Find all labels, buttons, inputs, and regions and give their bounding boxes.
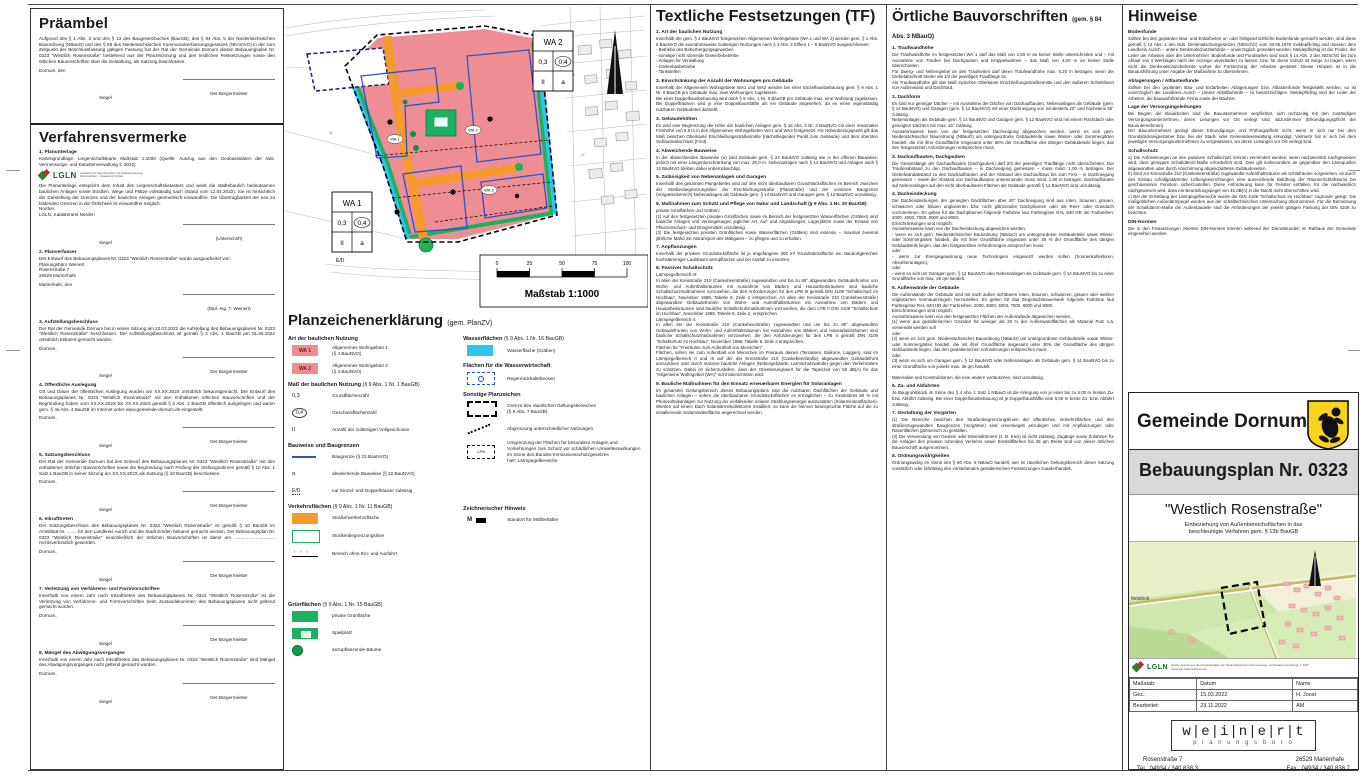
legend-item-label: Grundflächenzahl [332, 393, 369, 399]
obv-section-body: Die Dacheindeckungen der geneigten Dachf… [892, 198, 1114, 281]
legend-symbol: M [467, 517, 486, 523]
seal-label: Siegel [99, 443, 112, 448]
hinweise-section-body: Sollten bei den geplanten Bau- und Erdar… [1128, 85, 1356, 102]
firm-logo: w|e|i|n|e|r|t p l a n u n g s b ü r o [1129, 720, 1358, 751]
svg-text:51: 51 [329, 131, 333, 135]
lgln-logo-mark [1133, 662, 1144, 673]
firm-name: w|e|i|n|e|r|t [1182, 724, 1304, 740]
legend-item-label: nur Einzel- und Doppelhäuser zulässig [332, 488, 412, 494]
legend-item-label: private Grünfläche [332, 613, 370, 619]
obv-section-heading: 1. Traufwandhöhe [892, 46, 1114, 51]
tf-section-heading: 4. Abweichende Bauweise [656, 149, 878, 154]
legend-item: Regenrückhaltebecken [463, 372, 644, 385]
obv-section: 6. Zu- und Abfahrten Je Baugrundstück im… [892, 384, 1114, 407]
verfahren-item: 2. Planverfasser Der Entwurf des Bebauun… [39, 250, 275, 315]
seal-label: Siegel [99, 577, 112, 582]
verfahren-item-place: Dornum, [39, 479, 275, 485]
lgln-logo-mark [39, 170, 50, 181]
svg-text:0,3: 0,3 [538, 59, 547, 66]
legend-item: II Anzahl der zulässigen Vollgeschosse [288, 425, 457, 436]
table-cell: 15.03.2022 [1197, 689, 1293, 700]
firm-subtitle: p l a n u n g s b ü r o [1182, 740, 1304, 746]
signature-row: Siegel Der Bürgermeister [39, 625, 275, 646]
legend-item: 0,3 Grundflächenzahl [288, 391, 457, 402]
svg-text:E/D: E/D [336, 258, 345, 264]
tf-section-heading: 7. Anpflanzungen [656, 245, 878, 250]
svg-text:0,3: 0,3 [337, 220, 346, 227]
tf-section-body: Innerhalb des gesamten Plangebietes sind… [656, 181, 878, 198]
tf-section-heading: 8. Passiver Schallschutz [656, 266, 878, 271]
verfahren-item-body2: Die Planunterlage entspricht dem Inhalt … [39, 183, 275, 217]
dornum-coat-of-arms [1306, 399, 1350, 451]
signature-label: Der Bürgermeister [210, 695, 248, 700]
obv-section-heading: 8. Ordnungswidrigkeiten [892, 454, 1114, 459]
legend-item: Grenze des räumlichen Geltungsbereiches … [463, 401, 644, 417]
legend-item: 0,4 Geschossflächenzahl [288, 408, 457, 419]
legend-item: a abweichende Bauweise (§ 22 BauNVO) [288, 469, 457, 480]
obv-section-heading: 4. Dacheindeckung [892, 192, 1114, 197]
divider-1 [650, 4, 651, 771]
legend-title: Planzeichenerklärung (gem. PlanZV) [288, 312, 644, 329]
legend-item: Wasserfläche (Gräben) [463, 345, 644, 356]
tf-section: 2. Einschränkung der Anzahl der Wohnunge… [656, 79, 878, 113]
legend-section: Planzeichenerklärung (gem. PlanZV) Art d… [288, 312, 644, 662]
legend-group-heading: Grünflächen (§ 9 Abs. 1 Nr. 15 BauGB) [288, 602, 457, 608]
legend-item: Baugrenze (§ 23 BauNVO) [288, 452, 457, 463]
lgln-attribution-text: Quelle: Auszug aus den Geobasisdaten der… [1171, 664, 1331, 670]
hinweise-section: Ablagerungen / Altlastenfunde Sollten be… [1128, 79, 1356, 102]
verfahren-item-title: 3. Aufstellungsbeschluss [39, 320, 275, 325]
signature-label: (Unterschrift) [216, 236, 243, 241]
verfahren-item-place: Dornum, [39, 549, 275, 555]
verfahren-item-title: 5. Satzungsbeschluss [39, 453, 275, 458]
svg-text:a: a [561, 79, 565, 86]
site-plan-svg: WA 1 WA 2 WA 2 51 35 17 WA 2 0,3 [285, 6, 648, 308]
legend-symbol [467, 372, 495, 385]
legend-symbol [292, 645, 303, 656]
signature-line [183, 79, 275, 81]
legend-group: Maß der baulichen Nutzung (§ 9 Abs. 1 Nr… [288, 382, 457, 436]
seal-label: Siegel [99, 95, 112, 100]
legend-group-heading: Maß der baulichen Nutzung (§ 9 Abs. 1 Nr… [288, 382, 457, 388]
verfahren-item-place: Dornum, [39, 613, 275, 619]
legend-symbol [468, 423, 491, 434]
legend-item-label: abweichende Bauweise (§ 22 BauNVO) [332, 471, 415, 477]
legend-group-heading: Zeichnerischer Hinweis [463, 506, 644, 512]
obv-section: 8. Ordnungswidrigkeiten Ordnungswidrig i… [892, 454, 1114, 471]
legend-symbol [292, 456, 316, 458]
obv-title: Örtliche Bauvorschriften (gem. § 84 Abs.… [892, 8, 1114, 42]
municipality-header: Gemeinde Dornum [1129, 393, 1358, 450]
table-cell: Gez.: [1130, 689, 1197, 700]
signature-row: Siegel Der Bürgermeister [39, 683, 275, 704]
retention-pond [307, 48, 389, 91]
verfahren-item-body1: Der Rat der Gemeinde Dornum hat den Entw… [39, 459, 275, 476]
svg-text:75: 75 [592, 261, 598, 267]
road-end-green [456, 82, 464, 90]
verfahren-item-body1: Ort und Dauer der öffentlichen Auslegung… [39, 389, 275, 412]
legend-symbol [292, 551, 318, 557]
svg-text:50: 50 [559, 261, 565, 267]
obv-section: 7. Gestaltung der Vorgärten (1) Die Bere… [892, 411, 1114, 450]
signature-row: Siegel Der Bürgermeister [39, 357, 275, 378]
legend-item: Straßenverkehrsfläche [288, 513, 457, 524]
seal-label: Siegel [99, 373, 112, 378]
legend-item: LPB Umgrenzung der Flächen für besondere… [463, 440, 644, 464]
signature-label: Der Bürgermeister [210, 573, 248, 578]
hinweise-section-heading: Ablagerungen / Altlastenfunde [1128, 79, 1356, 84]
table-cell: Name [1293, 678, 1358, 689]
procedure-column: Präambel Aufgrund des § 1 Abs. 3 und des… [30, 8, 284, 770]
legend-group-heading: Bauweise und Baugrenzen [288, 443, 457, 449]
hinweise-section-heading: Bodenfunde [1128, 30, 1356, 35]
tf-title: Textliche Festsetzungen (TF) [656, 8, 878, 26]
hinweise-section-heading: Schallschutz [1128, 149, 1356, 154]
legend-group: Sonstige Planzeichen Grenze des räumlich… [463, 392, 644, 464]
legend-item-label: Allgemeines Wohngebiet 1 (§ 4 BauNVO) [332, 345, 388, 357]
legend-symbol [467, 401, 497, 417]
hinweise-column: Hinweise Bodenfunde Sollten bei den gepl… [1128, 8, 1356, 241]
location-map-label: ttelstrick [1131, 596, 1150, 602]
legend-item-label: Umgrenzung der Flächen für besondere Anl… [507, 440, 644, 464]
tf-section-heading: 2. Einschränkung der Anzahl der Wohnunge… [656, 79, 878, 84]
tf-section-heading: 3. Gebäudehöhen [656, 117, 878, 122]
tf-section-heading: 1. Art der baulichen Nutzung [656, 30, 878, 35]
verfahren-item-title: 1. Planunterlage [39, 150, 275, 155]
verfahren-item-body1: Der Entwurf des Bebauungsplanes Nr. 0323… [39, 256, 275, 279]
tf-section-body: private Grünflächen und Gräben: (1) Auf … [656, 208, 878, 241]
legend-group: Grünflächen (§ 9 Abs. 1 Nr. 15 BauGB) pr… [288, 602, 457, 656]
firm-fax: Fax.: 04934 / 340 838 7 [1287, 766, 1350, 772]
signature-line [183, 625, 275, 627]
legend-group: Zeichnerischer Hinweis M Standort für Mü… [463, 506, 644, 526]
legend-item-label: Bereich ohne Ein- und Ausfahrt [332, 551, 397, 557]
legend-item-label: Wasserfläche (Gräben) [507, 348, 555, 354]
verfahren-list: 1. Planunterlage Kartengrundlage: Liegen… [39, 150, 275, 704]
legend-symbol: II [292, 427, 295, 433]
revision-table: Maßstab: Datum Name Gez.: 15.03.2022 H. … [1129, 678, 1358, 712]
verfahren-item-title: 7. Verletzung von Verfahrens- und Formvo… [39, 587, 275, 592]
lgln-logo: LGLN Landesamt für Geoinformation und La… [39, 170, 275, 181]
tf-section-heading: 9. Bauliche Maßnahmen für den Einsatz er… [656, 382, 878, 387]
obv-section: 1. Traufwandhöhe Die Traufwandhöhe im fe… [892, 46, 1114, 91]
table-cell: Datum [1197, 678, 1293, 689]
legend-item-label: Spielplatz [332, 630, 352, 636]
tf-section-body: Im gesamten Geltungsbereich dieses Bebau… [656, 388, 878, 416]
verfahren-item-title: 8. Mängel des Abwägungsvorganges [39, 651, 275, 656]
tf-section-body: Innerhalb der gem. § 4 BauNVO festgesetz… [656, 36, 878, 75]
legend-item-label: Straßenbegrenzungslinie [332, 533, 384, 539]
signature-line [183, 683, 275, 685]
hinweise-section: Schallschutz a) Die Anforderungen an den… [1128, 149, 1356, 216]
verfahren-item-place: Dornum, [39, 671, 275, 677]
lgln-logo-word: LGLN [53, 171, 77, 180]
legend-item: Straßenbegrenzungslinie [288, 530, 457, 543]
verfahren-item-body1: Innerhalb von einem Jahr nach Inkrafttre… [39, 657, 275, 668]
hinweise-section-heading: DIN-Normen [1128, 220, 1356, 225]
tf-section: 9. Bauliche Maßnahmen für den Einsatz er… [656, 382, 878, 416]
legend-symbol [292, 530, 320, 543]
svg-text:25: 25 [527, 261, 533, 267]
legend-item-label: Geschossflächenzahl [332, 410, 377, 416]
legend-symbol: LPB [467, 445, 495, 459]
legend-item-label: Regenrückhaltebecken [507, 376, 555, 382]
legend-symbol [292, 513, 318, 524]
svg-text:WA 2: WA 2 [544, 38, 563, 47]
verfahren-item-body1: Kartengrundlage: Liegenschaftskarte Maßs… [39, 156, 275, 167]
signature-label: Der Bürgermeister [210, 369, 248, 374]
obv-section-body: Die Außenwände der Gebäude sind mit nach… [892, 292, 1114, 381]
signature-row: Siegel (Unterschrift) [39, 224, 275, 245]
verfahren-item-title: 2. Planverfasser [39, 250, 275, 255]
nutzungsschablone-wa2: WA 2 0,3 0,4 II a [533, 31, 573, 91]
lgln-logo-word: LGLN [1147, 664, 1168, 671]
seal-label: Siegel [99, 507, 112, 512]
table-cell: 23.11.2022 [1197, 700, 1293, 711]
obv-section: 2. Dachform Es sind nur geneigte Dächer … [892, 95, 1114, 151]
legend-group-heading: Flächen für die Wasserwirtschaft [463, 363, 644, 369]
obv-section-body: Je Baugrundstück im Sinne des § 4 Abs. 1… [892, 390, 1114, 407]
legend-symbol: WA 1 [292, 345, 318, 356]
hinweise-section-heading: Lage der Versorgungsleitungen [1128, 105, 1356, 110]
signature-label: Der Bürgermeister [210, 637, 248, 642]
scale-label: Maßstab 1:1000 [525, 289, 600, 300]
legend-group: Verkehrsflächen (§ 9 Abs. 1 Nr. 11 BauGB… [288, 504, 457, 560]
legend-right-column: Wasserflächen (§ 9 Abs. 1 Nr. 16 BauGB) … [457, 329, 644, 662]
signature-label: Der Bürgermeister [210, 91, 248, 96]
legend-symbol [467, 345, 493, 356]
svg-text:WA 2: WA 2 [484, 188, 494, 193]
legend-group-heading: Verkehrsflächen (§ 9 Abs. 1 Nr. 11 BauGB… [288, 504, 457, 510]
tf-section: 5. Zulässigkeit von Nebenanlagen und Gar… [656, 175, 878, 198]
legend-symbol: a [292, 471, 295, 477]
legend-symbol: 0,3 [292, 393, 300, 399]
legend-item: E/D nur Einzel- und Doppelhäuser zulässi… [288, 486, 457, 497]
legend-group: Bauweise und Baugrenzen Baugrenze (§ 23 … [288, 443, 457, 497]
legend-item-label: Abgrenzung unterschiedlicher Nutzungen [507, 426, 593, 432]
legend-group: Flächen für die Wasserwirtschaft Regenrü… [463, 363, 644, 385]
seal-label: Siegel [99, 641, 112, 646]
svg-text:0: 0 [496, 261, 499, 267]
divider-3 [1122, 4, 1123, 771]
verfahren-item: 8. Mängel des Abwägungsvorganges Innerha… [39, 651, 275, 704]
legend-item-label: Straßenverkehrsfläche [332, 515, 379, 521]
hinweise-section-body: Die in den Festsetzungen zitierten DIN-N… [1128, 226, 1356, 237]
signature-label: (Dipl.-Ing. T. Weinert) [207, 306, 250, 311]
signature-line [183, 491, 275, 493]
tf-section-body: In der abweichenden Bauweise (a) sind Ge… [656, 155, 878, 172]
tf-section: 6. Maßnahmen zum Schutz und Pflege von N… [656, 202, 878, 241]
preamble-place: Dornum, den [39, 68, 275, 74]
preamble-body: Aufgrund des § 1 Abs. 3 und des § 13 des… [39, 36, 275, 65]
obv-section-body: Die Gesamtlänge der Dachaufbauten (Dachg… [892, 161, 1114, 189]
signature-row: Siegel Der Bürgermeister [39, 427, 275, 448]
legend-symbol: E/D [292, 488, 300, 495]
firm-address-row: Rosenstraße 7 26529 Marienhafe [1129, 751, 1358, 763]
tf-section: 1. Art der baulichen Nutzung Innerhalb d… [656, 30, 878, 75]
plan-sheet: Präambel Aufgrund des § 1 Abs. 3 und des… [0, 0, 1366, 778]
hinweise-section-body: a) Die Anforderungen an den passiven Sch… [1128, 155, 1356, 216]
verfahren-item-title: 6. Inkrafttreten [39, 517, 275, 522]
hinweise-section: Bodenfunde Sollten bei den geplanten Bau… [1128, 30, 1356, 75]
plan-name: "Westlich Rosenstraße" [1129, 495, 1358, 518]
obv-section-body: (1) Die Bereiche zwischen den Straßenbeg… [892, 417, 1114, 450]
firm-contact-row: Tel.: 04934 / 340 838 3 Fax.: 04934 / 34… [1129, 763, 1358, 772]
obv-section: 4. Dacheindeckung Die Dacheindeckungen d… [892, 192, 1114, 281]
verfahren-item-title: 4. Öffentliche Auslegung [39, 383, 275, 388]
signature-row: Siegel Der Bürgermeister [39, 491, 275, 512]
plan-number-band: Bebauungsplan Nr. 0323 [1129, 450, 1358, 495]
legend-symbol [292, 611, 318, 622]
obv-section-heading: 7. Gestaltung der Vorgärten [892, 411, 1114, 416]
svg-text:II: II [541, 79, 545, 86]
tf-section-body: Innerhalb der privaten Grundstücksfläche… [656, 251, 878, 262]
signature-line [183, 294, 275, 296]
road-end-green [515, 163, 523, 171]
seal-label: Siegel [99, 699, 112, 704]
signature-line [183, 357, 275, 359]
obv-section: 5. Außenwände der Gebäude Die Außenwände… [892, 286, 1114, 381]
svg-text:WA 1: WA 1 [343, 199, 362, 208]
preamble-title: Präambel [39, 15, 275, 32]
legend-item-label: Baugrenze (§ 23 BauNVO) [332, 454, 388, 460]
legend-item-label: Grenze des räumlichen Geltungsbereiches … [507, 403, 596, 415]
title-block: Gemeinde Dornum Bebauungsplan Nr. 0323 "… [1128, 392, 1359, 770]
lgln-attribution-row: LGLN Quelle: Auszug aus den Geobasisdate… [1129, 659, 1358, 678]
obv-section-body: Es sind nur geneigte Dächer – mit Ausnah… [892, 101, 1114, 151]
lgln-logo-subtext: Landesamt für Geoinformation und Landesv… [80, 173, 150, 179]
verfahren-item-body1: Der Satzungsbeschluss des Bebauungsplane… [39, 523, 275, 546]
tf-section: 3. Gebäudehöhen Es wird eine Begrenzung … [656, 117, 878, 145]
hinweise-section-body: Bei Beginn der Bauarbeiten sind die Bauu… [1128, 111, 1356, 144]
verfahren-item: 4. Öffentliche Auslegung Ort und Dauer d… [39, 383, 275, 448]
tf-section-body: Innerhalb der Allgemeinen Wohngebiete WA… [656, 85, 878, 113]
table-cell: AM [1293, 700, 1358, 711]
legend-item: Spielplatz [288, 628, 457, 639]
verfahren-item: 3. Aufstellungsbeschluss Der Rat der Gem… [39, 320, 275, 379]
plan-number: Bebauungsplan Nr. 0323 [1129, 450, 1358, 481]
table-cell: Maßstab: [1130, 678, 1197, 689]
signature-label: Der Bürgermeister [210, 503, 248, 508]
svg-text:II: II [340, 240, 344, 247]
legend-item-label: Standort für Müllbehälter [507, 517, 558, 523]
divider-2 [886, 4, 887, 771]
legend-item-label: anzupflanzende Bäume [332, 647, 381, 653]
obv-section-heading: 5. Außenwände der Gebäude [892, 286, 1114, 291]
fold-mark [6, 350, 20, 351]
tf-section: 4. Abweichende Bauweise In der abweichen… [656, 149, 878, 172]
obv-section: 3. Dachaufbauten, Dachgauben Die Gesamtl… [892, 155, 1114, 189]
legend-item: M Standort für Müllbehälter [463, 515, 644, 526]
legend-group-heading: Wasserflächen (§ 9 Abs. 1 Nr. 16 BauGB) [463, 336, 644, 342]
firm-city: 26529 Marienhafe [1296, 757, 1344, 763]
bauvorschriften-column: Örtliche Bauvorschriften (gem. § 84 Abs.… [892, 8, 1114, 475]
legend-item: private Grünfläche [288, 611, 457, 622]
legend-group: Wasserflächen (§ 9 Abs. 1 Nr. 16 BauGB) … [463, 336, 644, 356]
obv-section-heading: 2. Dachform [892, 95, 1114, 100]
tf-section-body: Es wird eine Begrenzung der Höhe der bau… [656, 123, 878, 145]
legend-symbol [292, 628, 318, 639]
legend-left-column: Art der baulichen Nutzung WA 1 Allgemein… [288, 329, 457, 662]
legend-item-label: Anzahl der zulässigen Vollgeschosse [332, 427, 409, 433]
site-plan-map: WA 1 WA 2 WA 2 51 35 17 WA 2 0,3 [285, 6, 648, 308]
legend-item-label: Allgemeines Wohngebiet 2 (§ 4 BauNVO) [332, 363, 388, 375]
location-map-svg: ttelstrick [1129, 542, 1356, 658]
verfahren-title: Verfahrensvermerke [39, 129, 275, 146]
legend-symbol: 0,4 [292, 408, 307, 418]
legend-group-heading: Sonstige Planzeichen [463, 392, 644, 398]
hinweise-title: Hinweise [1128, 8, 1356, 26]
location-map: ttelstrick [1129, 541, 1358, 659]
signature-row: Siegel Der Bürgermeister [39, 79, 275, 100]
fold-mark [6, 170, 20, 171]
obv-section-body: Ordnungswidrig im Sinne des § 80 Abs. 5 … [892, 460, 1114, 471]
table-cell: H. Joost [1293, 689, 1358, 700]
verfahren-item: 6. Inkrafttreten Der Satzungsbeschluss d… [39, 517, 275, 582]
legend-group: Art der baulichen Nutzung WA 1 Allgemein… [288, 336, 457, 375]
signature-label: Der Bürgermeister [210, 439, 248, 444]
legend-item: Bereich ohne Ein- und Ausfahrt [288, 549, 457, 560]
tf-section: 8. Passiver Schallschutz Lärmpegelbereic… [656, 266, 878, 377]
signature-row: (Dipl.-Ing. T. Weinert) [39, 294, 275, 315]
obv-section-body: Die Traufwandhöhe im festgesetzten WA 1 … [892, 52, 1114, 91]
scale-bar: 0 25 50 75 100 Maßstab 1:1000 [480, 255, 648, 307]
svg-text:WA 1: WA 1 [390, 137, 400, 142]
textliche-festsetzungen-column: Textliche Festsetzungen (TF) 1. Art der … [656, 8, 878, 420]
hinweise-section: Lage der Versorgungsleitungen Bei Beginn… [1128, 105, 1356, 144]
firm-phone: Tel.: 04934 / 340 838 3 [1137, 766, 1198, 772]
legend-item: anzupflanzende Bäume [288, 645, 457, 656]
svg-text:0,4: 0,4 [357, 220, 366, 227]
svg-text:a: a [360, 240, 364, 247]
legend-group-heading: Art der baulichen Nutzung [288, 336, 457, 342]
verfahren-item: 1. Planunterlage Kartengrundlage: Liegen… [39, 150, 275, 245]
seal-label: Siegel [99, 240, 112, 245]
obv-section-heading: 3. Dachaufbauten, Dachgauben [892, 155, 1114, 160]
signature-line [183, 224, 275, 226]
verfahren-item-place: Dornum, [39, 346, 275, 352]
table-cell: Bearbeitet: [1130, 700, 1197, 711]
tf-section-heading: 5. Zulässigkeit von Nebenanlagen und Gar… [656, 175, 878, 180]
legend-item: Abgrenzung unterschiedlicher Nutzungen [463, 423, 644, 434]
verfahren-item-place: Dornum, [39, 415, 275, 421]
verfahrensvermerke-section: Verfahrensvermerke 1. Planunterlage Kart… [31, 125, 283, 713]
legend-item: WA 2 Allgemeines Wohngebiet 2 (§ 4 BauNV… [288, 363, 457, 375]
legend-symbol: WA 2 [292, 363, 318, 374]
svg-text:17: 17 [581, 153, 585, 157]
plan-subtitle: Einbeziehung von Außenbereichsflächen in… [1129, 518, 1358, 537]
obv-section-heading: 6. Zu- und Abfahrten [892, 384, 1114, 389]
preamble-section: Präambel Aufgrund des § 1 Abs. 3 und des… [31, 9, 283, 125]
svg-text:WA 2: WA 2 [468, 128, 478, 133]
tf-section-body: Lärmpegelbereich III: In allen der Kreis… [656, 272, 878, 377]
fold-mark [1348, 350, 1360, 351]
playground-icon [435, 118, 447, 126]
hinweise-section: DIN-Normen Die in den Festsetzungen ziti… [1128, 220, 1356, 237]
turning-circle [419, 238, 433, 252]
verfahren-item: 5. Satzungsbeschluss Der Rat der Gemeind… [39, 453, 275, 512]
tf-section: 7. Anpflanzungen Innerhalb der privaten … [656, 245, 878, 262]
signature-line [183, 427, 275, 429]
tf-section-heading: 6. Maßnahmen zum Schutz und Pflege von N… [656, 202, 878, 207]
svg-text:100: 100 [623, 261, 632, 267]
signature-line [183, 561, 275, 563]
verfahren-item-body1: Der Rat der Gemeinde Dornum hat in seine… [39, 326, 275, 343]
nutzungsschablone-wa1: WA 1 0,3 0,4 II a E/D [332, 192, 372, 264]
firm-street: Rosenstraße 7 [1143, 757, 1182, 763]
frame-top [28, 4, 1358, 5]
verfahren-item-place: Marienhafe, den [39, 282, 275, 288]
